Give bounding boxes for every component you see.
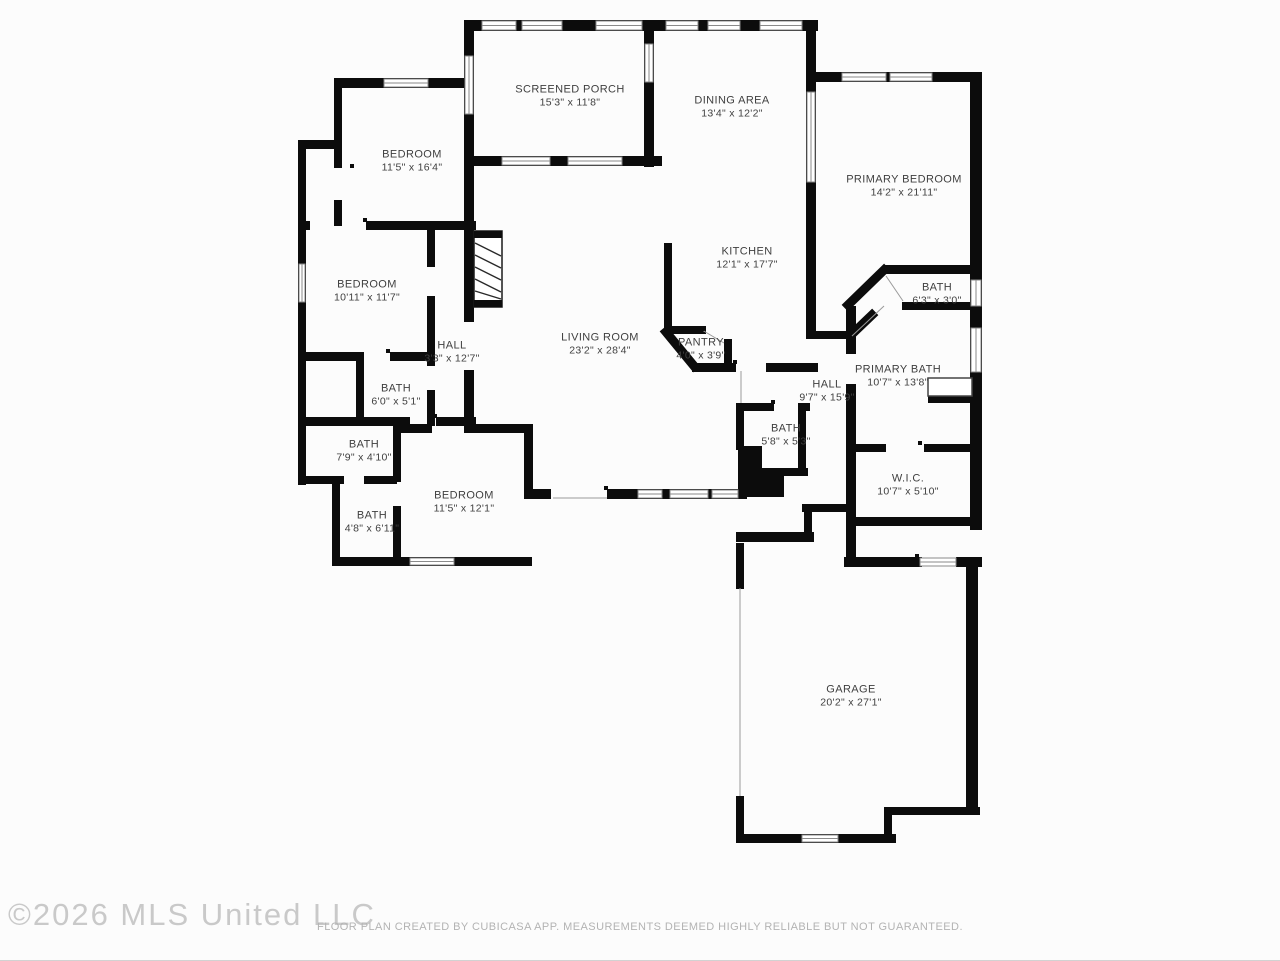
bathtub-icon xyxy=(928,378,972,396)
footer-disclaimer: FLOOR PLAN CREATED BY CUBICASA APP. MEAS… xyxy=(0,921,1280,933)
fireplace-icon xyxy=(474,231,502,307)
floorplan-drawing xyxy=(0,0,1280,960)
floorplan-page: SCREENED PORCH15'3" x 11'8" DINING AREA1… xyxy=(0,0,1280,961)
walls xyxy=(298,20,982,843)
